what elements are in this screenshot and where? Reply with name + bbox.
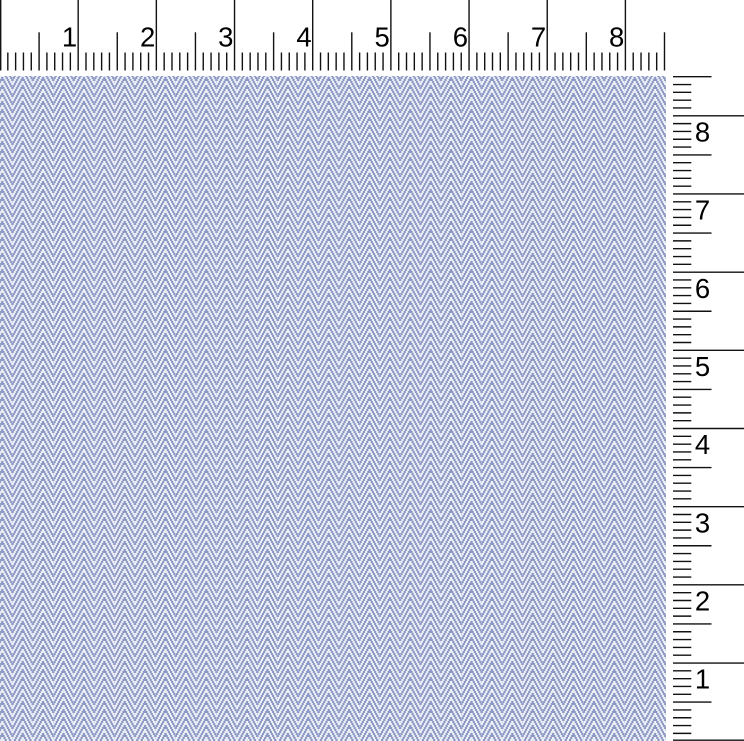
svg-text:6: 6 — [695, 273, 710, 304]
svg-text:2: 2 — [695, 585, 710, 616]
svg-text:2: 2 — [140, 22, 155, 53]
svg-text:8: 8 — [695, 116, 710, 147]
svg-text:4: 4 — [296, 22, 311, 53]
svg-text:8: 8 — [609, 22, 624, 53]
svg-text:1: 1 — [695, 664, 710, 695]
svg-text:6: 6 — [453, 22, 468, 53]
svg-text:3: 3 — [695, 507, 710, 538]
svg-text:5: 5 — [695, 351, 710, 382]
svg-text:7: 7 — [695, 195, 710, 226]
svg-text:5: 5 — [375, 22, 390, 53]
svg-text:4: 4 — [695, 429, 710, 460]
svg-text:3: 3 — [218, 22, 233, 53]
svg-text:7: 7 — [531, 22, 546, 53]
svg-text:1: 1 — [62, 22, 77, 53]
